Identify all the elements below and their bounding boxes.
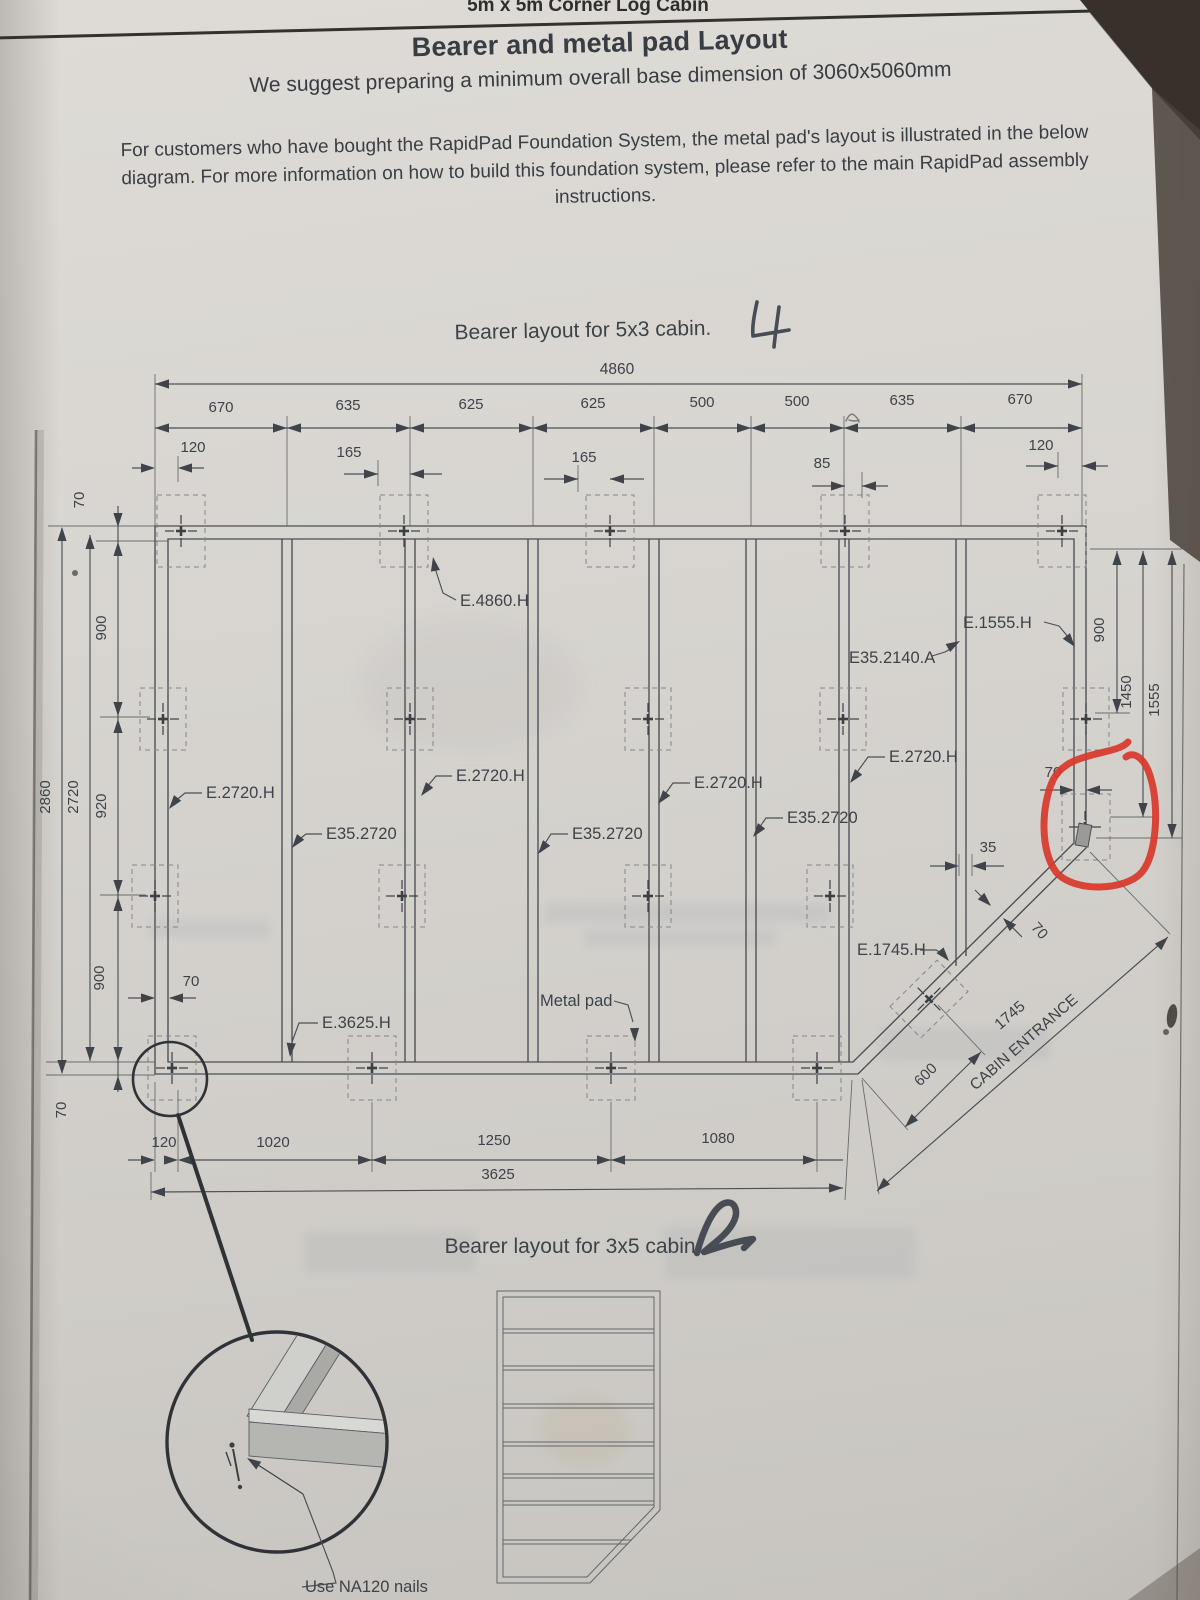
label-bottom-bearer: E.3625.H: [322, 1014, 391, 1032]
caption-3x5: Bearer layout for 3x5 cabin.: [445, 1235, 702, 1258]
label-vertical-bearer: E.2720.H: [694, 774, 763, 792]
dim-left-seg: 900: [93, 615, 110, 640]
label-metal-pad: Metal pad: [540, 992, 612, 1010]
dim-bottom: 120: [151, 1134, 176, 1151]
left-dimensions: 2860 2720 70 900 920 900 70 70: [37, 492, 199, 1119]
ink-smudge: [1165, 1003, 1178, 1028]
dim-offset: 165: [571, 449, 596, 466]
bearer-layout-drawing: 5m x 5m Corner Log Cabin: [0, 0, 1200, 1600]
dim-left-seg: 70: [53, 1102, 70, 1119]
caption-5x3: Bearer layout for 5x3 cabin.: [454, 317, 711, 344]
label-pad-column: E35.2720: [787, 809, 858, 827]
paper-speck: [72, 570, 78, 576]
dim-offset: 120: [180, 439, 205, 456]
dim-bay: 670: [1007, 391, 1032, 408]
dim-pad-offset: 35: [980, 839, 997, 856]
bottom-dimensions: 120 1020 1250 1080 3625: [128, 1080, 852, 1200]
mini-3x5-layout: [497, 1291, 660, 1583]
handwritten-4: [753, 302, 789, 347]
corner-joint-drawing: [226, 1284, 393, 1489]
dim-offset: 85: [814, 455, 831, 472]
component-labels: E.4860.H E.1555.H E35.2140.A E.2720.H E.…: [165, 556, 1078, 1057]
dim-bay: 625: [580, 395, 605, 412]
dim-bearer-width: 70: [1027, 919, 1051, 943]
dim-overall-width: 4860: [600, 361, 635, 378]
dim-offset: 165: [336, 444, 361, 461]
right-dimensions: 900 1450 1555 70 35: [930, 549, 1182, 876]
dim-left-inner: 2720: [65, 780, 82, 813]
dim-right-seg: 900: [1091, 617, 1108, 642]
top-dimensions: 4860 670 635 625 625 500 500 635 670 120…: [132, 361, 1108, 526]
label-pad-column: E35.2720: [572, 825, 643, 843]
photo-corner-dark: [1128, 1548, 1200, 1600]
dim-bottom: 1250: [477, 1132, 510, 1149]
dim-bay: 500: [689, 394, 714, 411]
dim-bay: 625: [458, 396, 483, 413]
bearers: [282, 539, 966, 1062]
dim-left-seg: 920: [93, 793, 110, 818]
cabin-frame: [155, 526, 1086, 1074]
dim-bay: 500: [784, 393, 809, 410]
dim-right-seg: 1555: [1146, 683, 1163, 716]
dim-bottom-total: 3625: [481, 1166, 514, 1183]
dim-offset: 120: [1028, 437, 1053, 454]
dim-left-overall: 2860: [37, 780, 54, 813]
pad-crosshairs: [139, 515, 1102, 1084]
dim-left-seg: 70: [71, 492, 88, 509]
pencil-squiggle: [846, 414, 859, 422]
dim-entrance-length: 1745: [991, 998, 1028, 1033]
label-right-top: E.1555.H: [963, 614, 1032, 632]
dim-right-seg: 1450: [1118, 675, 1135, 708]
dim-left-seg: 900: [91, 965, 108, 990]
dim-bottom: 1020: [256, 1134, 289, 1151]
pad-offset-dims: 120 165 165 85 120: [132, 437, 1108, 498]
dim-bottom: 1080: [701, 1130, 734, 1147]
label-vertical-bearer: E.2720.H: [456, 767, 525, 785]
dim-bay: 635: [889, 392, 914, 409]
nails-note: Use NA120 nails: [305, 1578, 428, 1596]
label-vertical-bearer: E.2720.H: [206, 784, 275, 802]
label-top-bearer: E.4860.H: [460, 592, 529, 610]
dim-entrance-width: 600: [911, 1060, 941, 1090]
clipped-doc-title: 5m x 5m Corner Log Cabin: [467, 0, 709, 16]
label-vertical-bearer: E.2720.H: [889, 748, 958, 766]
pad-outline: [132, 495, 1110, 1100]
corner-detail-magnifier: Use NA120 nails: [133, 1042, 428, 1596]
metal-pads: [132, 495, 1110, 1100]
label-corner-pad: E35.2140.A: [849, 649, 935, 667]
dim-bearer-width: 70: [183, 973, 200, 990]
dim-bay: 670: [208, 399, 233, 416]
label-pad-column: E35.2720: [326, 825, 397, 843]
handwritten-2: [697, 1202, 753, 1253]
label-diagonal-bearer: E.1745.H: [857, 941, 926, 959]
dim-bay: 635: [335, 397, 360, 414]
